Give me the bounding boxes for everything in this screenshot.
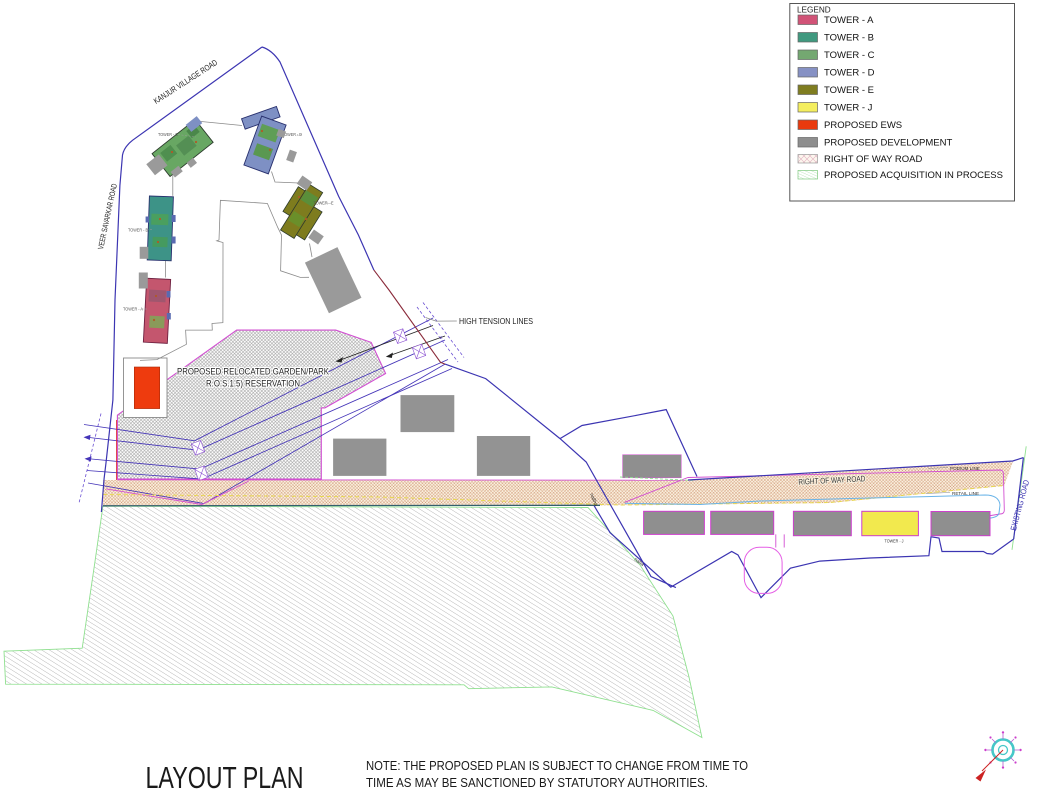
svg-text:TOWER - A: TOWER - A	[123, 307, 144, 312]
svg-text:TIME AS MAY BE SANCTIONED BY S: TIME AS MAY BE SANCTIONED BY STATUTORY A…	[366, 775, 708, 790]
svg-text:LAYOUT PLAN: LAYOUT PLAN	[146, 760, 304, 795]
svg-text:PROPOSED RELOCATED GARDEN/PARK: PROPOSED RELOCATED GARDEN/PARK	[177, 367, 330, 377]
svg-text:RIGHT OF WAY ROAD: RIGHT OF WAY ROAD	[824, 154, 922, 165]
svg-text:TOWER - J: TOWER - J	[824, 103, 873, 114]
svg-text:R.O.S.1.5) RESERVATION: R.O.S.1.5) RESERVATION	[206, 379, 300, 389]
svg-text:TOWER - D: TOWER - D	[824, 68, 875, 79]
svg-text:HIGH TENSION LINES: HIGH TENSION LINES	[459, 317, 533, 326]
svg-text:NOTE: THE PROPOSED PLAN IS SUB: NOTE: THE PROPOSED PLAN IS SUBJECT TO CH…	[366, 758, 748, 773]
svg-text:PODIUM LINE: PODIUM LINE	[950, 466, 980, 471]
svg-text:TOWER - B: TOWER - B	[824, 33, 874, 44]
svg-text:PROPOSED EWS: PROPOSED EWS	[824, 120, 902, 131]
svg-text:TOWER - B: TOWER - B	[128, 228, 148, 233]
svg-text:RETAIL LINE: RETAIL LINE	[952, 491, 979, 496]
svg-text:TOWER - E: TOWER - E	[824, 85, 874, 96]
svg-text:PROPOSED ACQUISITION IN PROCES: PROPOSED ACQUISITION IN PROCESS	[824, 170, 1003, 181]
svg-text:TOWER - J: TOWER - J	[885, 539, 904, 544]
svg-text:LEGEND: LEGEND	[797, 6, 831, 15]
svg-text:TOWER - C: TOWER - C	[158, 132, 179, 137]
svg-text:PROPOSED DEVELOPMENT: PROPOSED DEVELOPMENT	[824, 138, 952, 149]
svg-text:TOWER - C: TOWER - C	[824, 50, 875, 61]
svg-text:TOWER - A: TOWER - A	[824, 15, 874, 26]
